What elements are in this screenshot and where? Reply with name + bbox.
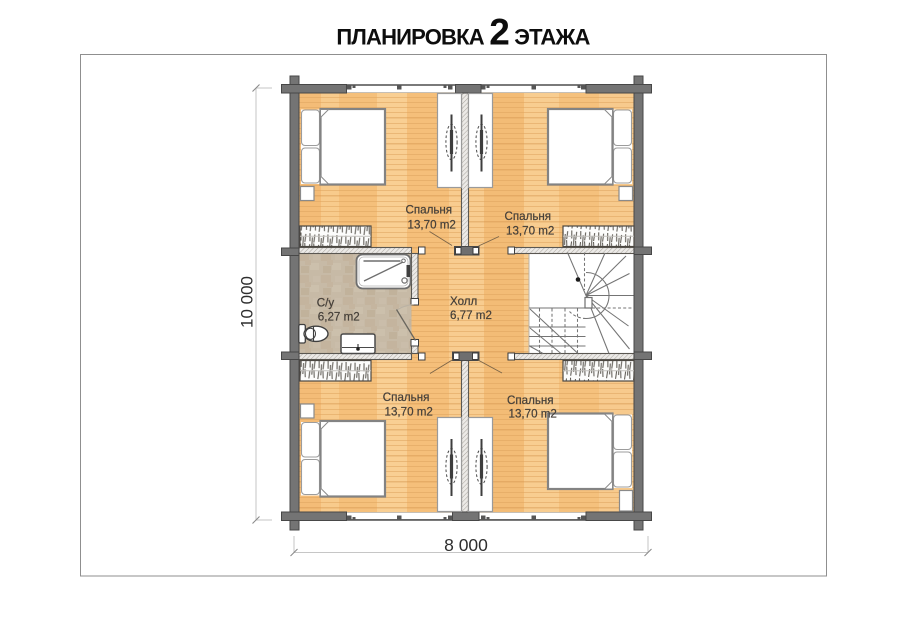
svg-text:13,70 m2: 13,70 m2 bbox=[385, 406, 433, 419]
svg-text:6,77 m2: 6,77 m2 bbox=[450, 309, 492, 322]
svg-text:Холл: Холл bbox=[450, 295, 477, 308]
svg-text:13,70 m2: 13,70 m2 bbox=[509, 408, 557, 421]
svg-text:10 000: 10 000 bbox=[238, 276, 257, 328]
svg-text:Спальня: Спальня bbox=[406, 204, 453, 217]
svg-text:Спальня: Спальня bbox=[505, 210, 552, 223]
svg-text:Спальня: Спальня bbox=[383, 391, 430, 404]
svg-text:6,27 m2: 6,27 m2 bbox=[318, 311, 360, 324]
svg-text:13,70 m2: 13,70 m2 bbox=[408, 218, 456, 231]
svg-text:Спальня: Спальня bbox=[507, 394, 554, 407]
svg-text:13,70 m2: 13,70 m2 bbox=[506, 225, 554, 238]
svg-text:8 000: 8 000 bbox=[444, 535, 488, 555]
svg-text:С/у: С/у bbox=[317, 297, 335, 310]
